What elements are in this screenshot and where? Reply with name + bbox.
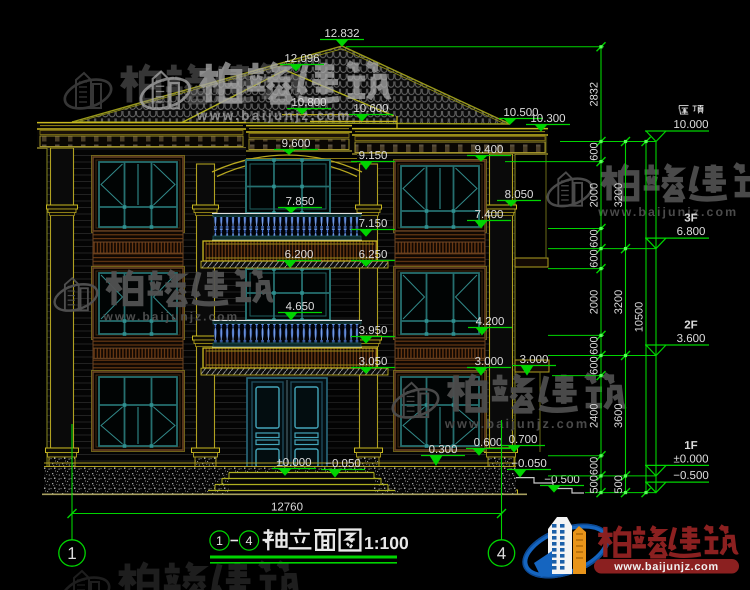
svg-text:3200: 3200 [613,183,625,207]
svg-text:4.200: 4.200 [476,316,505,328]
svg-text:1F: 1F [684,440,697,452]
svg-text:8.050: 8.050 [505,189,534,201]
svg-text:7.400: 7.400 [475,209,504,221]
svg-text:9.150: 9.150 [359,150,388,162]
svg-text:1:100: 1:100 [364,533,409,553]
svg-text:10.600: 10.600 [353,103,388,115]
svg-text:6.200: 6.200 [285,249,314,261]
svg-text:3.000: 3.000 [520,354,549,366]
svg-text:www.baijunjz.com: www.baijunjz.com [103,309,240,323]
svg-text:3F: 3F [684,213,697,225]
svg-text:6.250: 6.250 [359,249,388,261]
svg-text:3.600: 3.600 [677,333,706,345]
svg-text:7.850: 7.850 [286,196,315,208]
svg-text:10.300: 10.300 [530,113,565,125]
svg-text:−0.050: −0.050 [511,458,547,470]
svg-text:2000: 2000 [589,183,601,207]
svg-text:4: 4 [246,534,253,548]
svg-text:2400: 2400 [589,403,601,427]
svg-text:2000: 2000 [589,290,601,314]
svg-text:−0.500: −0.500 [673,470,709,482]
svg-text:600: 600 [589,336,601,354]
svg-text:1: 1 [67,544,76,563]
svg-text:1: 1 [216,534,223,548]
svg-text:3.050: 3.050 [359,356,388,368]
svg-text:2F: 2F [684,320,697,332]
svg-text:6.800: 6.800 [677,226,706,238]
svg-text:12.096: 12.096 [284,53,319,65]
svg-text:3200: 3200 [613,290,625,314]
svg-text:9.600: 9.600 [282,138,311,150]
svg-text:3600: 3600 [613,403,625,427]
svg-text:12.832: 12.832 [324,28,359,40]
svg-text:www.baijunjz.com: www.baijunjz.com [444,416,589,431]
svg-text:10.800: 10.800 [291,97,326,109]
svg-text:4: 4 [497,544,506,563]
svg-text:4.650: 4.650 [286,301,315,313]
svg-text:600: 600 [589,249,601,267]
svg-text:3.000: 3.000 [475,356,504,368]
svg-text:600: 600 [589,229,601,247]
svg-text:2832: 2832 [589,82,601,106]
svg-text:10.000: 10.000 [673,119,708,131]
svg-text:3.950: 3.950 [359,325,388,337]
svg-text:600: 600 [589,457,601,475]
svg-text:−0.050: −0.050 [325,458,361,470]
svg-text:500: 500 [589,475,601,493]
svg-text:600: 600 [589,356,601,374]
svg-text:www.baijunjz.com: www.baijunjz.com [613,561,719,573]
svg-text:0.300: 0.300 [429,444,458,456]
svg-text:500: 500 [613,475,625,493]
svg-text:600: 600 [589,142,601,160]
svg-text:7.150: 7.150 [359,218,388,230]
svg-text:12760: 12760 [271,502,303,514]
svg-text:www.baijunjz.com: www.baijunjz.com [196,107,352,123]
svg-text:±0.000: ±0.000 [673,453,708,465]
svg-text:9.400: 9.400 [475,144,504,156]
svg-text:0.700: 0.700 [509,434,538,446]
svg-text:±0.000: ±0.000 [276,457,311,469]
svg-text:0.600: 0.600 [474,437,503,449]
svg-text:10500: 10500 [634,302,646,333]
